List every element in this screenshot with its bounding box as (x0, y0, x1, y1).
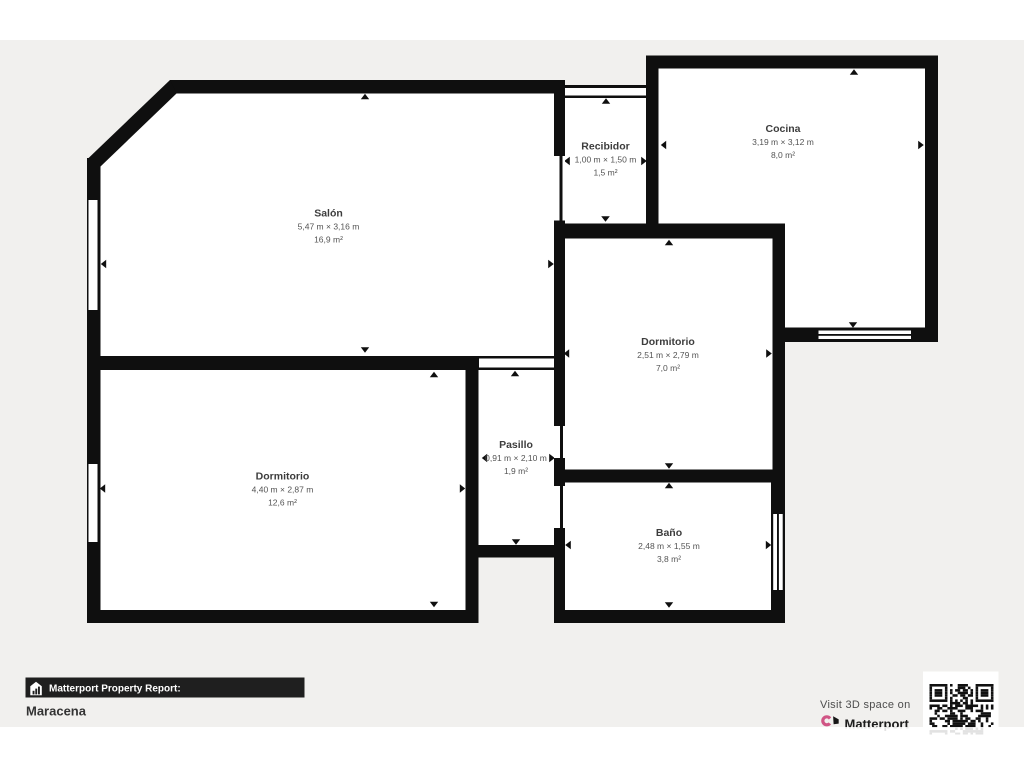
svg-text:1,00 m × 1,50 m: 1,00 m × 1,50 m (575, 155, 637, 165)
svg-text:0,91 m × 2,10 m: 0,91 m × 2,10 m (485, 453, 547, 463)
svg-text:3,8 m²: 3,8 m² (657, 554, 681, 564)
svg-text:Visit 3D space on: Visit 3D space on (820, 699, 911, 711)
svg-text:2,48 m × 1,55 m: 2,48 m × 1,55 m (638, 541, 700, 551)
svg-text:8,0 m²: 8,0 m² (771, 150, 795, 160)
svg-text:16,9 m²: 16,9 m² (314, 235, 343, 245)
svg-text:Cocina: Cocina (765, 123, 800, 135)
svg-text:Maracena: Maracena (26, 704, 87, 719)
svg-text:4,40 m × 2,87 m: 4,40 m × 2,87 m (252, 485, 314, 495)
svg-text:Dormitorio: Dormitorio (256, 471, 310, 483)
svg-text:1,9 m²: 1,9 m² (504, 466, 528, 476)
svg-text:Recibidor: Recibidor (581, 141, 629, 153)
svg-text:3,19 m × 3,12 m: 3,19 m × 3,12 m (752, 137, 814, 147)
svg-text:Salón: Salón (314, 208, 343, 220)
svg-text:2,51 m × 2,79 m: 2,51 m × 2,79 m (637, 350, 699, 360)
svg-text:5,47 m × 3,16 m: 5,47 m × 3,16 m (298, 222, 360, 232)
svg-text:7,0 m²: 7,0 m² (656, 363, 680, 373)
svg-text:12,6 m²: 12,6 m² (268, 498, 297, 508)
svg-text:Dormitorio: Dormitorio (641, 336, 695, 348)
svg-text:Pasillo: Pasillo (499, 439, 533, 451)
svg-text:Matterport Property Report:: Matterport Property Report: (49, 684, 181, 695)
svg-text:1,5 m²: 1,5 m² (593, 168, 617, 178)
svg-text:Baño: Baño (656, 527, 682, 539)
